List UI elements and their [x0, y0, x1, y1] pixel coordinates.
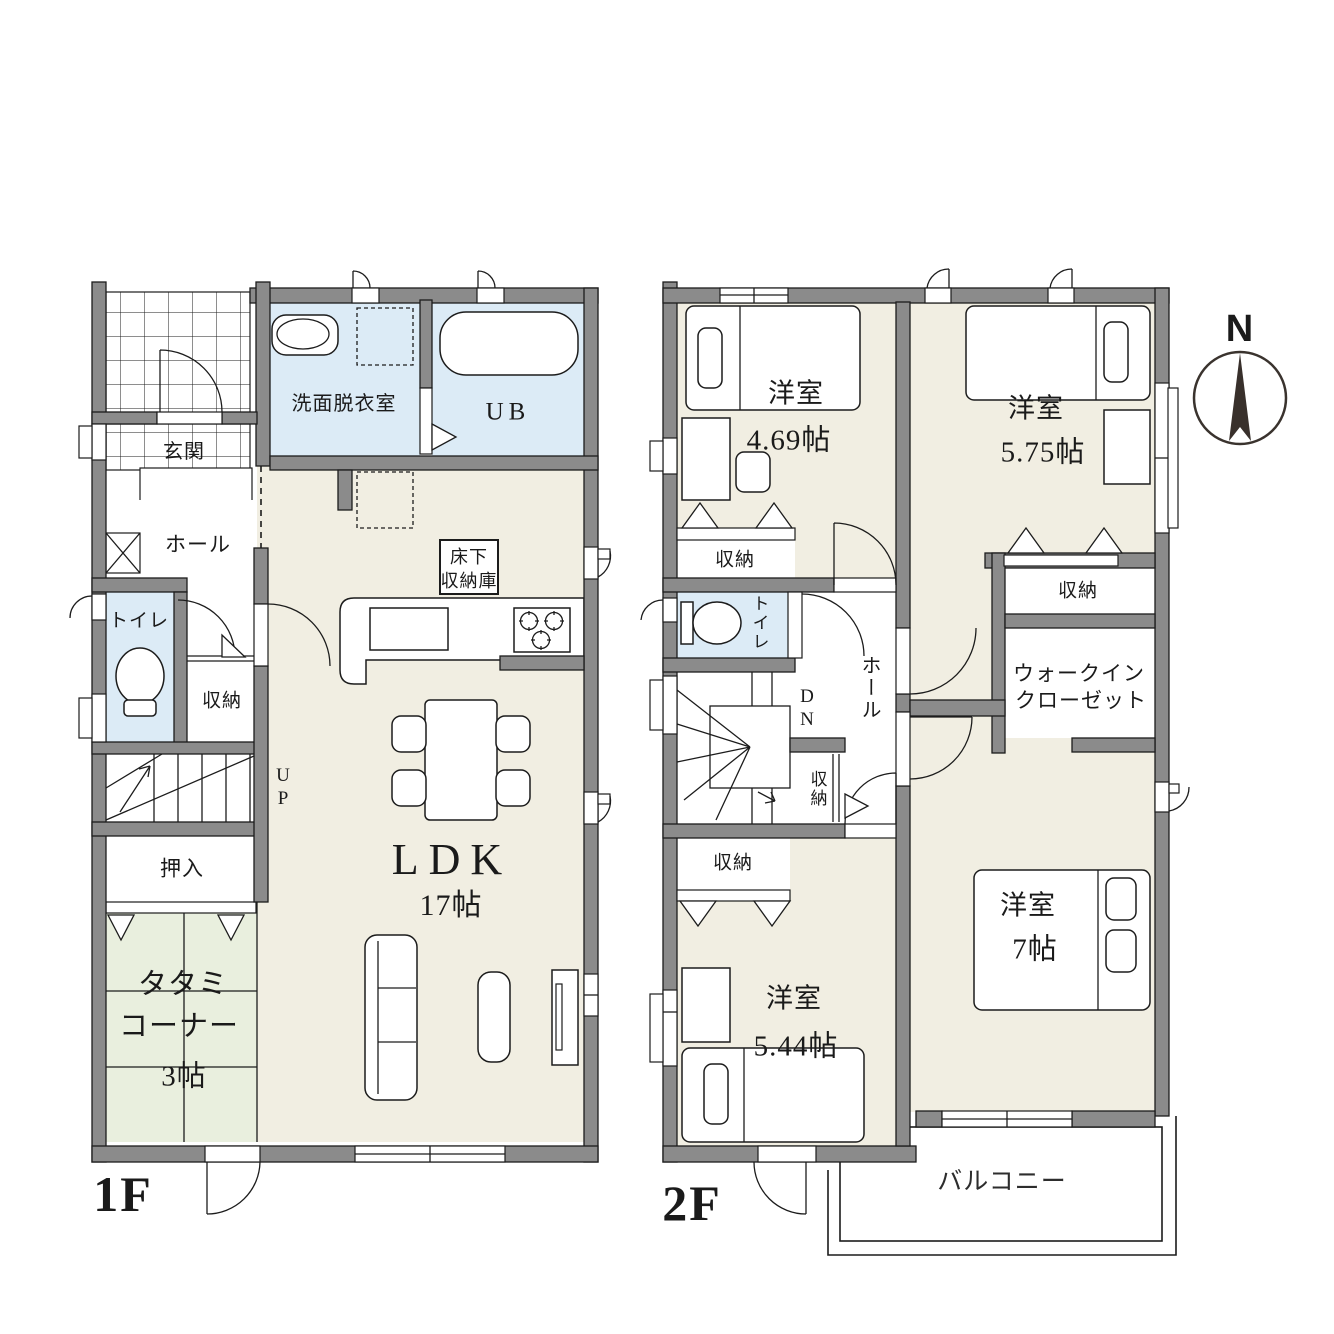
pillow: [1106, 930, 1136, 972]
floor1-title: 1F: [93, 1169, 153, 1219]
kitchen-sink: [370, 608, 448, 650]
closet-label-room4: 収納: [713, 854, 753, 873]
bathtub: [440, 312, 578, 375]
floor2-plan: [641, 269, 1189, 1255]
pillow: [698, 328, 722, 388]
room-size-room2: 5.75帖: [1001, 439, 1086, 468]
oshiire-sliding-door: [106, 902, 256, 913]
room-size-room4: 5.44帖: [754, 1033, 839, 1062]
room-size-room1: 4.69帖: [747, 427, 832, 456]
genkan-step: [140, 468, 252, 502]
kitchen-stove: [514, 608, 570, 652]
dining-chair: [392, 770, 426, 806]
room-label-oshiire: 押入: [160, 859, 204, 880]
tv: [556, 984, 562, 1050]
room-label-tatami-line1: タタミ: [138, 971, 228, 1000]
toilet2-tank: [681, 602, 693, 644]
stairs-down-label: DN: [798, 686, 817, 732]
room-label-hall2: ホール: [859, 655, 879, 721]
room-label-room2: 洋室: [1008, 396, 1064, 423]
toilet1-bowl: [116, 648, 164, 704]
desk: [682, 968, 730, 1042]
toilet1-base: [124, 700, 156, 716]
pillow: [1104, 322, 1128, 382]
pillow: [1106, 878, 1136, 920]
balcony-label: バルコニー: [937, 1170, 1067, 1195]
room-label-tatami-line2: コーナー: [119, 1013, 239, 1042]
stairs2-floor: [677, 672, 795, 824]
wic-label-line2: クローゼット: [1015, 691, 1147, 712]
room-label-genkan: 玄関: [163, 442, 205, 462]
room-label-room4: 洋室: [766, 986, 822, 1013]
room-label-toilet2: トイレ: [751, 595, 768, 652]
room-label-washroom: 洗面脱衣室: [292, 394, 397, 414]
floorplan-canvas: 玄関 ホール トイレ 収納 洗面脱衣室 UB 床下 収納庫 LDK 17帖 UP…: [0, 0, 1334, 1334]
compass-north-label: N: [1226, 310, 1254, 348]
room-label-storage1: 収納: [202, 692, 242, 711]
room-label-hall1: ホール: [165, 535, 231, 556]
desk: [682, 418, 730, 500]
sofa: [365, 935, 417, 1100]
room-label-room1: 洋室: [768, 381, 824, 408]
room-size-ldk: 17帖: [420, 891, 483, 921]
low-table: [478, 972, 510, 1062]
compass: [1194, 352, 1286, 444]
room-label-toilet1: トイレ: [109, 612, 169, 631]
label-underfloor-line1: 床下: [450, 548, 488, 566]
floor2-title: 2F: [662, 1178, 722, 1228]
compass-needle: [1229, 353, 1251, 441]
desk: [1104, 410, 1150, 484]
wic-label-line1: ウォークイン: [1013, 664, 1145, 685]
chair: [736, 452, 770, 492]
dining-table: [425, 700, 497, 820]
closet-label-room2: 収納: [1058, 582, 1098, 601]
room-size-room3: 7帖: [1012, 936, 1058, 965]
room-size-tatami: 3帖: [161, 1063, 207, 1092]
toilet2-bowl: [693, 602, 741, 644]
room-label-bath: UB: [486, 400, 531, 425]
dining-chair: [496, 770, 530, 806]
room-label-ldk: LDK: [392, 838, 512, 882]
storage1-floor: [187, 592, 256, 744]
pillow: [704, 1064, 728, 1124]
label-underfloor-line2: 収納庫: [441, 572, 498, 590]
room2-entry-floor: [910, 553, 992, 716]
dining-chair: [496, 716, 530, 752]
room-label-room3: 洋室: [1000, 893, 1056, 920]
stairs-up-label: UP: [274, 765, 293, 811]
closet-label-room1: 収納: [715, 551, 755, 570]
closet-label-stairs: 収納: [809, 770, 826, 808]
dining-chair: [392, 716, 426, 752]
